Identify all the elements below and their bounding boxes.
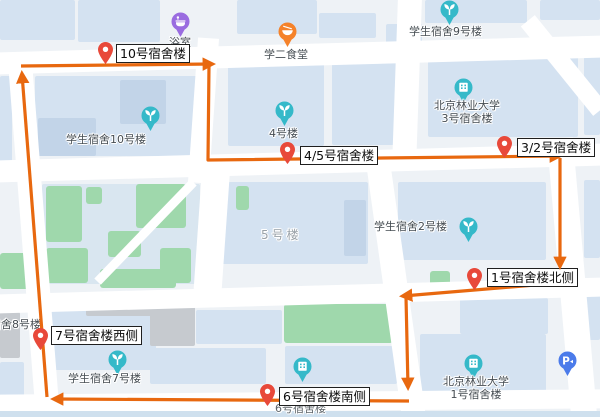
poi-label-dorm2: 学生宿舍2号楼 [374, 218, 447, 234]
route-marker-label[interactable]: 3/2号宿舍楼 [517, 138, 595, 157]
poi-label-dorm9: 学生宿舍9号楼 [409, 23, 482, 39]
poi-label-dorm10: 学生宿舍10号楼 [66, 131, 146, 147]
poi-label-line: 3号宿舍楼 [442, 112, 493, 125]
building-label-5: 5号楼 [261, 226, 302, 243]
plant-icon[interactable] [459, 217, 478, 247]
route-marker-label[interactable]: 10号宿舍楼 [116, 44, 190, 63]
route-marker-label[interactable]: 7号宿舍楼西侧 [51, 326, 142, 345]
poi-label-building4: 4号楼 [269, 125, 298, 141]
poi-label-dorm7: 学生宿舍7号楼 [68, 370, 141, 386]
building-icon[interactable] [293, 357, 312, 387]
building [0, 0, 75, 40]
building [344, 200, 366, 256]
route-marker-label[interactable]: 4/5号宿舍楼 [300, 146, 378, 165]
building [319, 13, 376, 38]
red-pin-icon[interactable] [33, 328, 48, 354]
poi-label-line: 北京林业大学 [443, 375, 509, 388]
green-area [236, 186, 249, 210]
building [150, 348, 266, 384]
red-pin-icon[interactable] [260, 384, 275, 410]
building [78, 0, 160, 42]
poi-label-canteen: 学二食堂 [264, 46, 308, 62]
green-area [46, 186, 82, 242]
poi-label-bfu-dorm1: 北京林业大学 1号宿舍楼 [435, 375, 517, 401]
road [194, 164, 231, 291]
building [540, 0, 600, 20]
parking-icon[interactable]: P [558, 351, 577, 381]
green-area [46, 248, 88, 283]
poi-label-bfu-dorm3: 北京林业大学 3号宿舍楼 [426, 99, 508, 125]
poi-label-line: 北京林业大学 [434, 99, 500, 112]
building [460, 298, 548, 334]
red-pin-icon[interactable] [280, 142, 295, 168]
gray-building [150, 306, 195, 346]
green-area [86, 187, 102, 204]
route-marker-label[interactable]: 1号宿舍楼北侧 [487, 268, 578, 287]
route-marker-label[interactable]: 6号宿舍楼南侧 [279, 387, 370, 406]
red-pin-icon[interactable] [467, 268, 482, 294]
building [237, 0, 317, 34]
map-canvas[interactable]: P 浴室 学二食堂 学生宿舍9号楼 北京林业大学 3号宿舍楼 4号楼 学生宿舍1… [0, 0, 600, 417]
building [196, 310, 282, 344]
green-area [284, 304, 393, 343]
parking-glyph: P [562, 356, 570, 368]
building [584, 180, 600, 258]
red-pin-icon[interactable] [497, 136, 512, 162]
poi-label-line: 1号宿舍楼 [451, 388, 502, 401]
red-pin-icon[interactable] [98, 42, 113, 68]
